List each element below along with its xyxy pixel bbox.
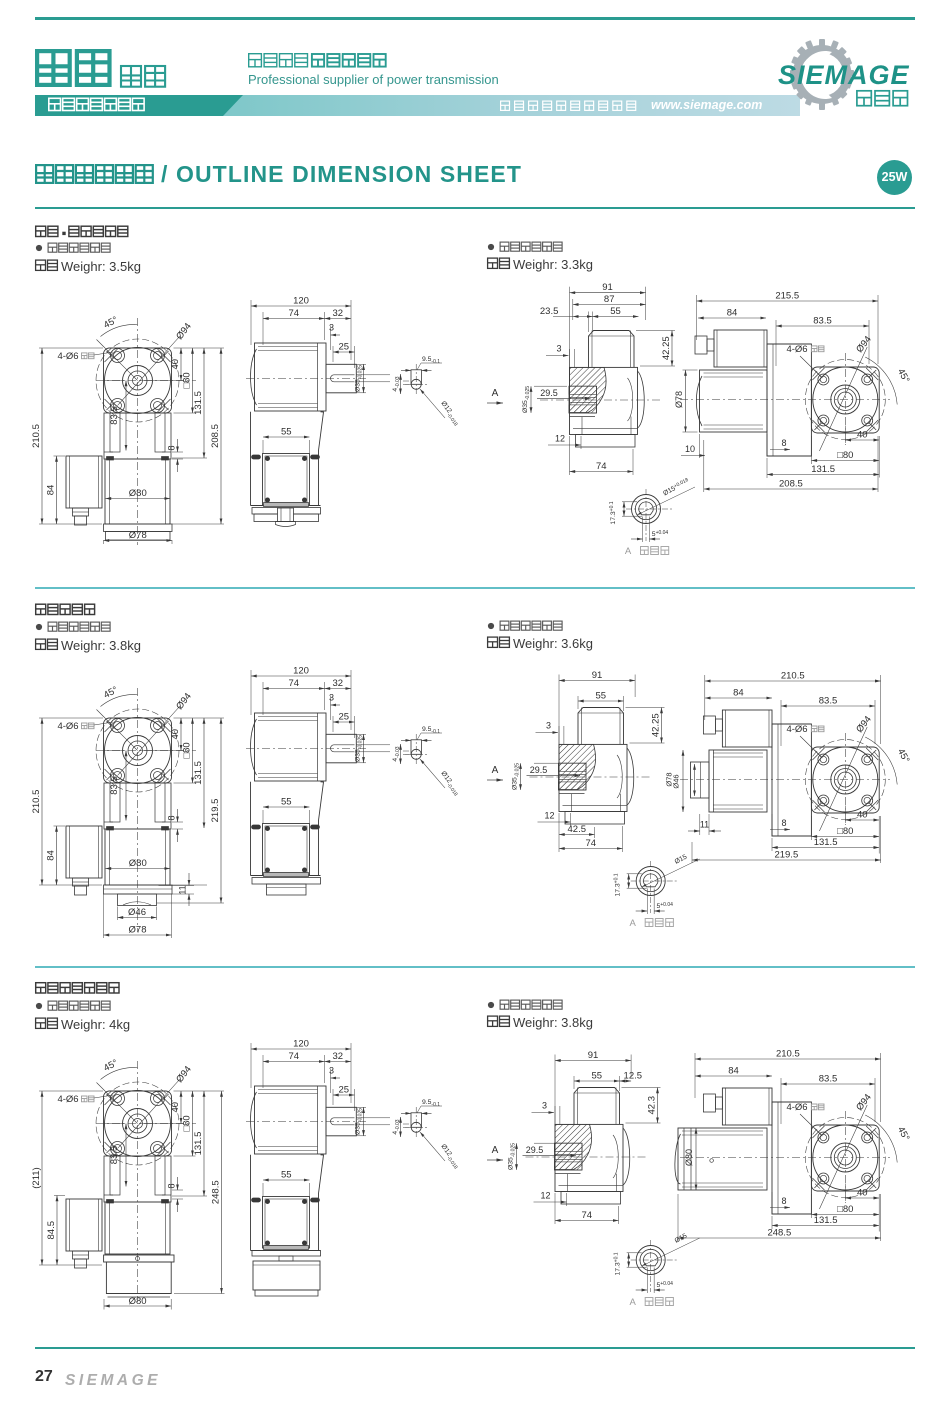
svg-text:A: A [492, 388, 499, 399]
svg-text:32: 32 [332, 678, 343, 689]
svg-text:29.5: 29.5 [530, 765, 548, 775]
svg-text:4-0.03: 4-0.03 [392, 746, 401, 761]
svg-text:83.5: 83.5 [819, 696, 838, 707]
svg-text:210.5: 210.5 [31, 424, 42, 448]
svg-text:55: 55 [595, 691, 606, 702]
svg-text:11: 11 [178, 885, 188, 894]
svg-text:12.5: 12.5 [624, 1071, 643, 1082]
svg-text:5+0.04: 5+0.04 [656, 902, 673, 910]
svg-text:A: A [630, 918, 637, 929]
svg-text:8: 8 [781, 438, 786, 448]
svg-text:Ø15: Ø15 [674, 1232, 689, 1244]
svg-text:3: 3 [329, 323, 334, 333]
svg-text:74: 74 [581, 1210, 592, 1221]
svg-text:25: 25 [338, 712, 349, 723]
svg-text:Ø78: Ø78 [129, 925, 147, 936]
svg-text:84: 84 [46, 485, 57, 496]
svg-text:Ø35-0.025: Ø35-0.025 [508, 1143, 517, 1170]
svg-text:4-Ø6: 4-Ø6 [57, 351, 78, 362]
svg-text:17.3+0.1: 17.3+0.1 [609, 501, 617, 524]
svg-text:45°: 45° [102, 684, 120, 701]
svg-text:29.5: 29.5 [526, 1145, 544, 1155]
svg-text:10: 10 [685, 444, 695, 454]
svg-text:84: 84 [728, 1066, 739, 1077]
svg-text:5+0.04: 5+0.04 [656, 1281, 673, 1289]
svg-text:40: 40 [857, 1188, 868, 1199]
svg-text:Ø80: Ø80 [129, 1296, 147, 1307]
svg-text:Ø15+0.018: Ø15+0.018 [662, 477, 691, 497]
svg-text:131.5: 131.5 [193, 761, 204, 785]
svg-text:248.5: 248.5 [767, 1228, 791, 1239]
svg-text:84: 84 [727, 308, 738, 319]
svg-text:Ø35-0.025: Ø35-0.025 [522, 386, 531, 413]
svg-text:208.5: 208.5 [210, 424, 221, 448]
svg-text:3: 3 [546, 721, 551, 731]
svg-text:Ø35-0.025: Ø35-0.025 [512, 763, 521, 790]
svg-text:131.5: 131.5 [193, 1132, 204, 1156]
svg-text:4-Ø6: 4-Ø6 [786, 1102, 807, 1113]
svg-text:55: 55 [281, 1170, 292, 1181]
svg-text:74: 74 [288, 678, 299, 689]
svg-text:40: 40 [170, 359, 181, 370]
svg-text:131.5: 131.5 [814, 837, 838, 848]
svg-text:45°: 45° [895, 747, 912, 765]
svg-text:120: 120 [293, 666, 309, 677]
svg-text:131.5: 131.5 [193, 391, 204, 415]
svg-text:74: 74 [288, 308, 299, 319]
svg-text:A: A [625, 546, 632, 557]
svg-text:□80: □80 [837, 826, 853, 837]
svg-text:42.5: 42.5 [568, 824, 587, 835]
svg-text:91: 91 [602, 282, 613, 293]
svg-text:84: 84 [733, 688, 744, 699]
svg-text:74: 74 [288, 1051, 299, 1062]
svg-text:74: 74 [585, 838, 596, 849]
svg-text:4-Ø6: 4-Ø6 [786, 724, 807, 735]
svg-text:83.5: 83.5 [813, 316, 832, 327]
svg-text:Ø80: Ø80 [129, 858, 147, 869]
svg-text:55: 55 [281, 797, 292, 808]
svg-text:A: A [492, 1145, 499, 1156]
svg-text:□80: □80 [837, 1204, 853, 1215]
svg-text:3: 3 [556, 344, 561, 354]
svg-text:91: 91 [588, 1050, 599, 1061]
svg-text:83.5: 83.5 [819, 1074, 838, 1085]
svg-text:40: 40 [170, 1102, 181, 1113]
svg-text:17.3+0.1: 17.3+0.1 [614, 1252, 622, 1275]
svg-text:91: 91 [592, 670, 603, 681]
svg-text:40: 40 [857, 430, 868, 441]
svg-text:131.5: 131.5 [814, 1215, 838, 1226]
svg-text:84.5: 84.5 [46, 1221, 57, 1240]
svg-text:3: 3 [542, 1101, 547, 1111]
svg-text:5+0.04: 5+0.04 [652, 530, 669, 538]
svg-text:12: 12 [555, 434, 565, 444]
svg-text:4-0.03: 4-0.03 [392, 376, 401, 391]
svg-text:Ø80: Ø80 [684, 1149, 694, 1166]
svg-text:131.5: 131.5 [811, 464, 835, 475]
svg-text:8: 8 [167, 1183, 177, 1188]
svg-text:Ø94: Ø94 [854, 714, 874, 735]
svg-text:4-0.03: 4-0.03 [392, 1119, 401, 1134]
svg-text:83.5: 83.5 [109, 406, 120, 425]
svg-text:32: 32 [332, 1051, 343, 1062]
svg-text:74: 74 [596, 461, 607, 472]
svg-text:83.5: 83.5 [109, 776, 120, 795]
svg-text:12: 12 [540, 1191, 550, 1201]
svg-text:9.5-0.1: 9.5-0.1 [422, 726, 440, 735]
svg-text:9.5-0.1: 9.5-0.1 [422, 356, 440, 365]
svg-text:55: 55 [591, 1071, 602, 1082]
svg-text:42.25: 42.25 [661, 336, 672, 360]
svg-text:45°: 45° [102, 1057, 120, 1074]
svg-text:23.5: 23.5 [540, 306, 559, 317]
svg-text:29.5: 29.5 [540, 388, 558, 398]
svg-text:42.3: 42.3 [647, 1096, 658, 1115]
svg-text:215.5: 215.5 [775, 291, 799, 302]
svg-text:55: 55 [610, 306, 621, 317]
svg-text:Ø94: Ø94 [854, 1092, 874, 1113]
svg-text:40: 40 [170, 729, 181, 740]
svg-text:Ø78: Ø78 [674, 391, 684, 408]
svg-text:84: 84 [46, 850, 57, 861]
svg-text:Ø15: Ø15 [674, 853, 689, 865]
svg-text:83.5: 83.5 [109, 1146, 120, 1165]
svg-text:Ø46: Ø46 [672, 774, 681, 788]
svg-text:25: 25 [338, 1085, 349, 1096]
svg-text:□80: □80 [837, 450, 853, 461]
svg-text:210.5: 210.5 [781, 671, 805, 682]
svg-text:Ø80: Ø80 [129, 488, 147, 499]
svg-text:17.3+0.1: 17.3+0.1 [614, 873, 622, 896]
svg-text:3: 3 [329, 693, 334, 703]
svg-text:248.5: 248.5 [211, 1180, 222, 1204]
svg-text:45°: 45° [895, 367, 912, 385]
svg-text:A: A [630, 1297, 637, 1308]
svg-text:120: 120 [293, 296, 309, 307]
svg-text:3: 3 [329, 1066, 334, 1076]
svg-text:45°: 45° [895, 1125, 912, 1143]
svg-text:40: 40 [857, 810, 868, 821]
svg-text:210.5: 210.5 [776, 1049, 800, 1060]
svg-text:25: 25 [338, 342, 349, 353]
svg-text:11: 11 [700, 820, 709, 830]
svg-text:8: 8 [167, 815, 177, 820]
svg-text:8: 8 [781, 1196, 786, 1206]
svg-text:208.5: 208.5 [779, 479, 803, 490]
svg-text:45°: 45° [102, 314, 120, 331]
svg-text:8: 8 [167, 445, 177, 450]
svg-text:219.5: 219.5 [210, 799, 221, 823]
svg-text:42.25: 42.25 [651, 713, 662, 737]
svg-text:Ø94: Ø94 [854, 334, 874, 355]
svg-text:Ø78: Ø78 [129, 530, 147, 541]
svg-text:55: 55 [281, 427, 292, 438]
svg-text:4-Ø6: 4-Ø6 [57, 1094, 78, 1105]
svg-text:Ø46: Ø46 [128, 907, 146, 918]
svg-text:210.5: 210.5 [31, 790, 42, 814]
svg-text:12: 12 [544, 811, 554, 821]
svg-text:4-Ø6: 4-Ø6 [786, 344, 807, 355]
svg-text:(211): (211) [31, 1167, 42, 1188]
svg-text:219.5: 219.5 [774, 850, 798, 861]
svg-text:87: 87 [604, 294, 615, 305]
svg-text:32: 32 [332, 308, 343, 319]
svg-text:A: A [492, 765, 499, 776]
svg-text:4-Ø6: 4-Ø6 [57, 721, 78, 732]
svg-text:120: 120 [293, 1039, 309, 1050]
svg-text:8: 8 [781, 818, 786, 828]
svg-text:9.5-0.1: 9.5-0.1 [422, 1099, 440, 1108]
